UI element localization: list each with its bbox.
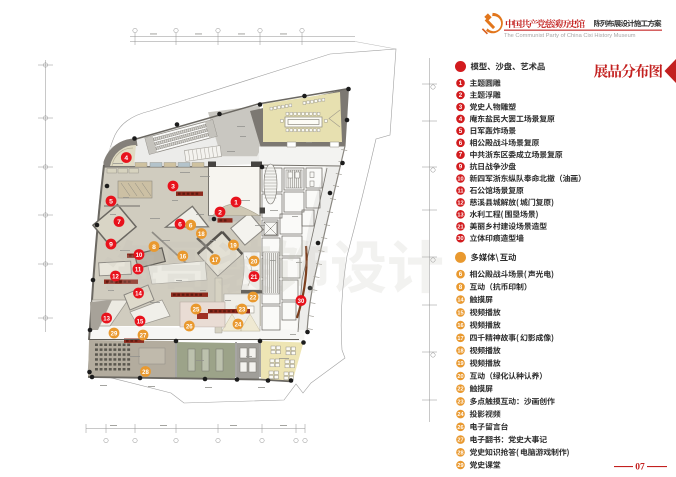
svg-text:23: 23 (239, 307, 246, 313)
svg-text:14: 14 (135, 291, 142, 297)
svg-text:4: 4 (124, 155, 128, 162)
svg-text:27: 27 (140, 333, 147, 339)
svg-text:19: 19 (230, 243, 237, 249)
svg-text:20: 20 (251, 259, 258, 265)
svg-text:27: 27 (457, 438, 463, 444)
svg-text:15: 15 (137, 319, 144, 325)
svg-text:18: 18 (457, 349, 463, 355)
svg-text:14: 14 (457, 298, 464, 304)
svg-text:9: 9 (459, 164, 463, 171)
svg-text:30: 30 (298, 299, 305, 305)
svg-text:7: 7 (117, 219, 121, 226)
svg-text:3: 3 (459, 104, 463, 111)
svg-text:28: 28 (142, 370, 149, 376)
svg-text:The Communist Party of China C: The Communist Party of China Cixi Histor… (504, 33, 636, 39)
svg-text:1: 1 (234, 199, 238, 206)
svg-text:22: 22 (457, 387, 463, 393)
svg-text:6: 6 (178, 221, 182, 228)
svg-text:15: 15 (457, 310, 463, 316)
svg-text:24: 24 (235, 322, 242, 328)
svg-text:25: 25 (193, 307, 200, 313)
svg-text:23: 23 (457, 399, 463, 405)
svg-text:8: 8 (152, 244, 156, 251)
svg-text:6: 6 (189, 222, 193, 229)
svg-text:1: 1 (459, 80, 463, 87)
svg-text:11: 11 (458, 189, 464, 195)
svg-text:12: 12 (112, 274, 119, 280)
svg-text:16: 16 (179, 254, 186, 260)
svg-text:29: 29 (457, 463, 463, 469)
svg-text:7: 7 (459, 152, 463, 159)
svg-text:21: 21 (251, 275, 258, 281)
svg-text:17: 17 (457, 336, 463, 342)
svg-text:5: 5 (109, 198, 113, 205)
svg-text:3: 3 (171, 183, 175, 190)
svg-text:19: 19 (457, 361, 463, 367)
svg-text:16: 16 (457, 323, 463, 329)
svg-text:5: 5 (459, 128, 463, 135)
svg-text:22: 22 (250, 295, 257, 301)
svg-text:2: 2 (218, 209, 222, 216)
svg-text:29: 29 (111, 331, 118, 337)
svg-text:20: 20 (457, 374, 463, 380)
svg-text:10: 10 (136, 253, 143, 259)
svg-text:26: 26 (186, 324, 193, 330)
svg-text:17: 17 (212, 258, 219, 264)
svg-text:21: 21 (457, 224, 463, 230)
svg-text:26: 26 (457, 425, 463, 431)
svg-text:28: 28 (457, 450, 463, 456)
svg-text:30: 30 (457, 236, 463, 242)
svg-text:10: 10 (457, 177, 463, 183)
svg-text:9: 9 (109, 241, 113, 248)
svg-text:2: 2 (459, 92, 463, 99)
svg-text:13: 13 (103, 316, 110, 322)
svg-text:6: 6 (459, 140, 463, 147)
svg-text:11: 11 (135, 267, 142, 273)
svg-text:6: 6 (459, 271, 463, 278)
svg-text:18: 18 (198, 232, 205, 238)
svg-text:12: 12 (457, 200, 463, 206)
svg-text:13: 13 (457, 212, 463, 218)
svg-text:8: 8 (459, 284, 463, 291)
svg-text:24: 24 (457, 412, 464, 418)
svg-text:07: 07 (635, 463, 645, 473)
svg-text:4: 4 (459, 116, 463, 123)
